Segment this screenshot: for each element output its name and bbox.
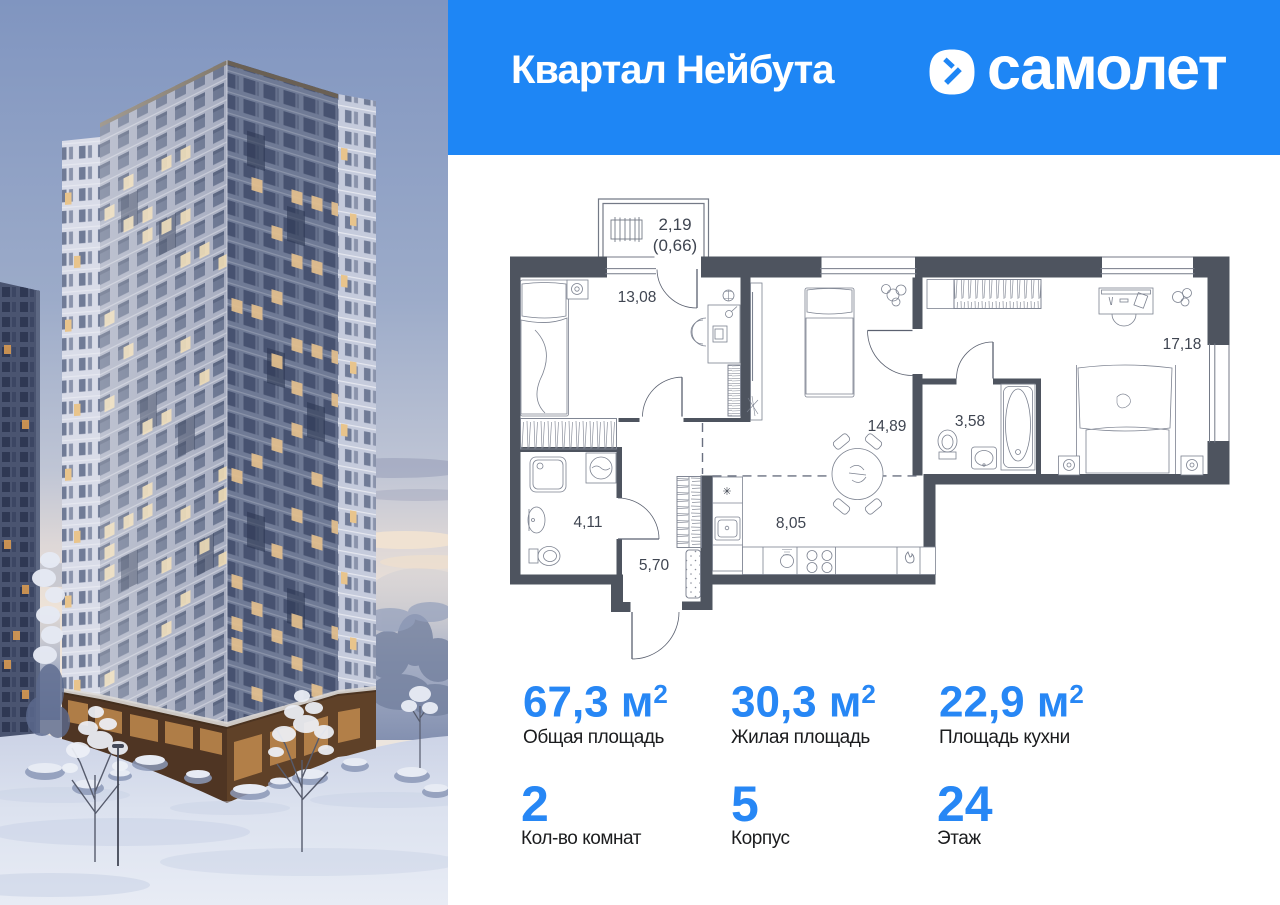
svg-text:17,18: 17,18 [1163,336,1202,353]
svg-text:(0,66): (0,66) [653,236,697,255]
svg-text:✳: ✳ [722,486,731,498]
svg-text:3,58: 3,58 [955,413,985,430]
svg-text:8,05: 8,05 [776,515,806,532]
svg-text:13,08: 13,08 [618,289,657,306]
svg-text:5,70: 5,70 [639,557,670,574]
svg-text:4,11: 4,11 [573,514,602,531]
svg-text:2,19: 2,19 [658,215,691,234]
svg-text:14,89: 14,89 [868,418,907,435]
